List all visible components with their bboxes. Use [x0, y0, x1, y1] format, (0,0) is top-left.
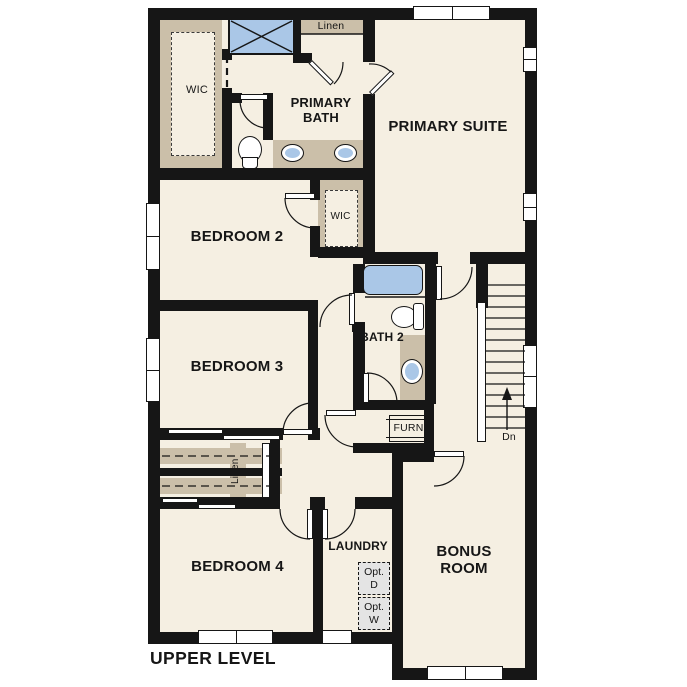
plan-title: UPPER LEVEL — [150, 648, 320, 668]
window — [146, 203, 160, 270]
stair-railing — [477, 302, 486, 442]
room-label-primary-suite: PRIMARY SUITE — [388, 118, 508, 135]
room-label-bedroom2-wic: WIC — [322, 211, 359, 223]
sink — [401, 359, 423, 384]
door-leaf — [326, 410, 356, 416]
window — [322, 630, 352, 644]
wall — [363, 8, 375, 62]
door-leaf — [363, 373, 369, 403]
wall — [313, 428, 320, 440]
door-leaf — [307, 509, 313, 539]
wall — [148, 300, 318, 311]
window — [523, 345, 537, 408]
wall — [263, 93, 273, 140]
wall — [148, 168, 375, 180]
wall — [148, 8, 160, 644]
window — [198, 630, 273, 644]
sink — [281, 144, 304, 162]
sliding-door-panel — [168, 429, 223, 434]
window — [523, 193, 537, 221]
stairs-down-label: Dn — [496, 431, 522, 443]
wall — [470, 252, 537, 264]
wall — [270, 440, 280, 500]
room-label-linen-upper: Linen — [300, 20, 362, 32]
toilet-base — [242, 157, 258, 169]
wall — [525, 8, 537, 680]
room-label-bedroom4: BEDROOM 4 — [160, 558, 315, 575]
door-leaf — [240, 94, 268, 100]
door-leaf — [349, 293, 355, 325]
room-label-bedroom3: BEDROOM 3 — [162, 358, 312, 375]
room-label-primary-wic: WIC — [177, 84, 217, 97]
window — [146, 338, 160, 402]
window — [413, 6, 490, 20]
wall — [222, 88, 232, 168]
optional-dryer: Opt. D — [358, 562, 390, 595]
shower — [228, 18, 295, 55]
room-label-laundry: LAUNDRY — [322, 540, 394, 554]
room-label-bonus-room: BONUS ROOM — [414, 543, 514, 578]
floor-area-bonus — [403, 632, 525, 668]
sliding-door-panel — [162, 498, 198, 503]
linen-cabinet-door — [262, 443, 270, 498]
floor-plan: Linen — [0, 0, 687, 687]
door-leaf — [434, 451, 464, 457]
sliding-door-panel — [223, 435, 280, 440]
door-leaf — [436, 266, 442, 300]
sliding-door-panel — [198, 504, 236, 509]
door-leaf — [283, 429, 313, 435]
optional-washer: Opt. W — [358, 597, 390, 630]
door-leaf — [322, 509, 328, 539]
wall — [392, 450, 434, 462]
window — [427, 666, 503, 680]
room-label-primary-bath: PRIMARY BATH — [282, 96, 360, 126]
door-leaf — [285, 193, 315, 199]
wall — [363, 252, 438, 264]
wall — [355, 497, 403, 509]
window — [523, 47, 537, 72]
wall — [148, 632, 403, 644]
wall — [310, 497, 325, 509]
bathtub — [363, 265, 423, 295]
sink — [334, 144, 357, 162]
toilet-tank — [413, 303, 424, 330]
wall — [425, 264, 436, 404]
room-label-furnace: FURN — [389, 422, 428, 434]
room-label-bedroom2: BEDROOM 2 — [162, 228, 312, 245]
room-label-bath2: BATH 2 — [358, 331, 406, 345]
wall — [363, 168, 375, 258]
wall — [392, 450, 403, 680]
